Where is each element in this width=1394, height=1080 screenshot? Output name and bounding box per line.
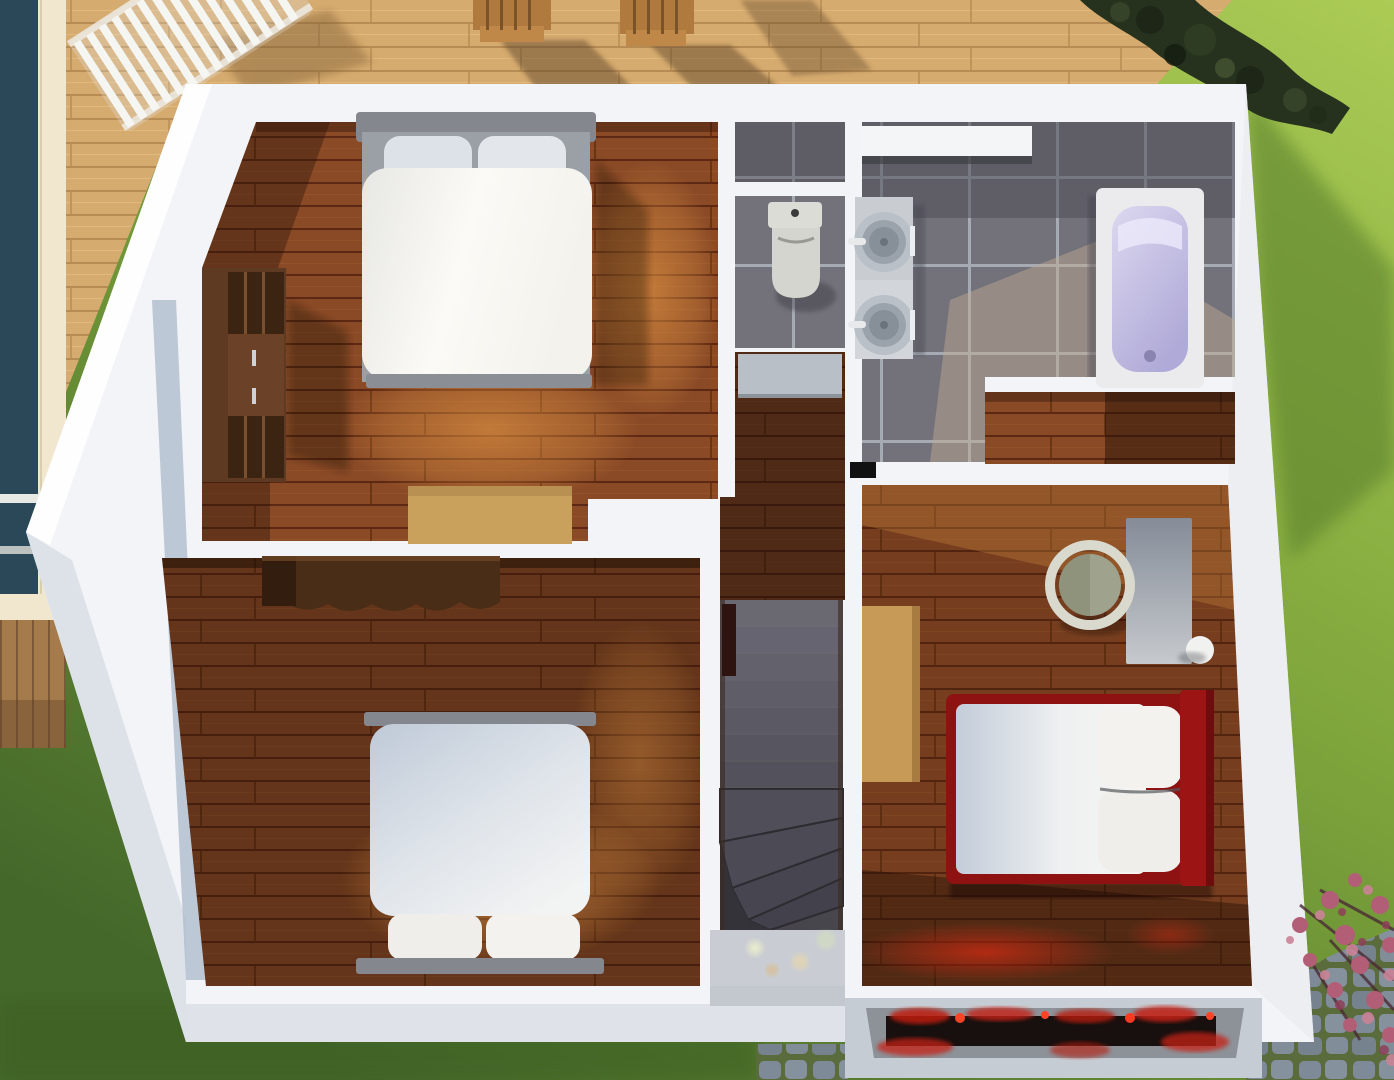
wc-door [738,354,842,398]
hall-apron [710,986,845,1006]
towel-bar [910,226,915,256]
bed-pillow [486,914,580,960]
bed-headboard [356,958,604,974]
wardrobe-shelf-top [228,272,284,334]
ball-lamp-shadow [1178,652,1206,664]
bed-footboard [364,712,596,726]
stair-steps [720,600,843,787]
bedroom1-wardrobe [202,268,286,482]
garden-fence-shade [0,700,66,748]
bed3-floor-shadow [950,882,1212,898]
red-flower-planter [845,998,1262,1078]
bathroom-shelf [862,126,1032,156]
stair-newel-dark [722,604,736,676]
wardrobe-shelf-bottom [228,416,284,478]
floor-plan-render [0,0,1394,1080]
cobblestone-path [756,1044,848,1080]
dresser-side-box [262,556,296,606]
closet-floor-shade-top [985,392,1235,402]
stair-stringer [838,600,843,930]
washbasin-counter [848,197,915,359]
bed-pillow [388,914,482,960]
bedroom1-rug-shade [408,486,572,496]
doorway-gap [850,462,876,478]
bed-duvet [370,724,590,916]
bed-duvet [362,168,592,380]
bedroom2-sun-patch [570,620,710,900]
wardrobe-handle [252,388,256,404]
deck-chair [473,0,551,42]
wardrobe-handle [252,350,256,366]
tan-side-table [862,606,920,782]
toilet-flush-button [791,209,799,217]
bed-footboard [366,374,592,388]
bed-pillow [1098,790,1182,872]
wc-door-edge [738,394,842,398]
side-table-edge [912,606,920,782]
deck-chair [620,0,694,46]
sage-armchair [1050,545,1130,625]
dresser-top-edge [262,556,500,561]
faucet [848,321,866,328]
bathroom-shelf-shadow [862,156,1032,164]
wc-niche-divider-wall [735,182,845,196]
closet-floor-shade [1105,392,1235,464]
staircase [720,600,843,930]
pool-water-highlight [0,0,38,594]
wc-floor-shade [735,122,845,182]
wall-bottom-face [186,1004,846,1042]
bedroom1-bed [356,112,596,388]
red-floor-glow [855,922,1115,982]
bedroom2-dresser [262,556,500,611]
hall-light-spot [766,964,778,976]
hall-light-spot [744,937,766,959]
hall-light-spot [817,931,835,949]
gray-desk [1126,518,1192,664]
bedroom3-bed [946,690,1214,886]
bathtub [1096,188,1204,388]
faucet [848,238,866,245]
towel-bar [910,310,915,340]
headboard-edge [1206,690,1214,886]
bathtub-drain [1144,350,1156,362]
bed-pillow [1098,706,1182,788]
red-floor-glow [1125,915,1215,955]
hall-light-spot [792,954,808,970]
bedroom2-bed [356,712,604,974]
